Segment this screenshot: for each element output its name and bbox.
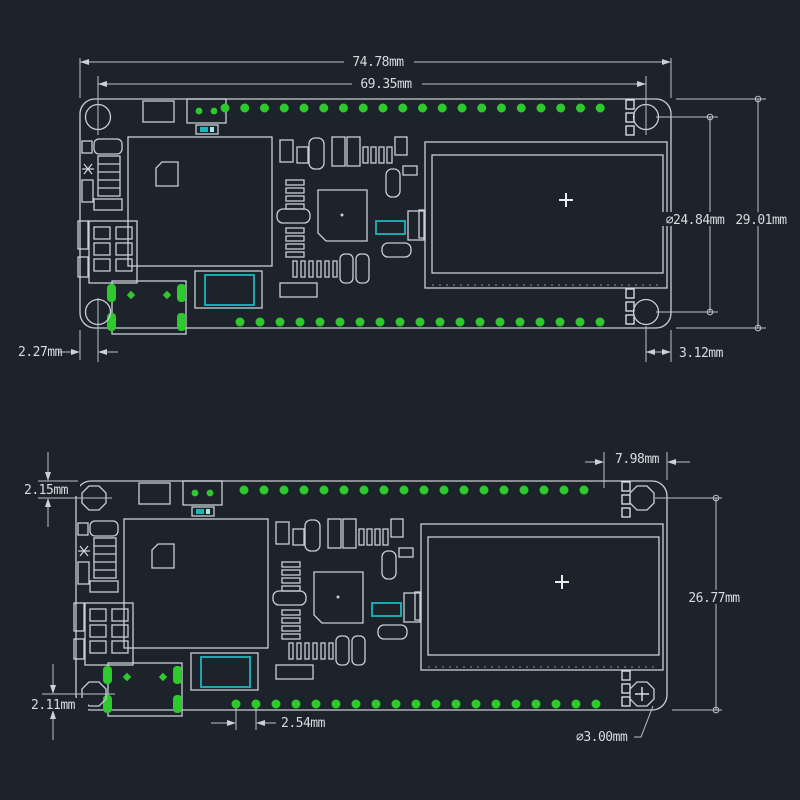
dim-right-hole-offset: 3.12mm	[646, 326, 724, 362]
dim-left-hole-offset-label: 2.27mm	[18, 345, 63, 360]
leader-line	[634, 706, 653, 737]
dim-hole-diameter-label: ⌀3.00mm	[576, 730, 628, 745]
dim-hole-diameter: ⌀3.00mm	[576, 706, 653, 745]
dim-hole-span-height-label: ⌀24.84mm	[666, 213, 725, 228]
top-view: 74.78mm 69.35mm ⌀24.84mm 29.01mm	[18, 55, 790, 362]
dim-right-hole-offset-label: 3.12mm	[679, 346, 724, 361]
dim-hole-span-width-label: 69.35mm	[360, 77, 412, 92]
dim-right-pin-offset: 7.98mm	[585, 452, 690, 488]
dim-overall-height-label: 29.01mm	[735, 213, 787, 228]
dim-pin-to-bottom-height: 26.77mm	[655, 495, 750, 713]
dim-pin-pitch-label: 2.54mm	[281, 716, 326, 731]
dim-top-pin-offset-label: 2.15mm	[24, 483, 69, 498]
pcb-dimension-drawing: 74.78mm 69.35mm ⌀24.84mm 29.01mm	[0, 0, 800, 800]
dim-bottom-pin-offset: 2.11mm	[18, 664, 115, 740]
dim-top-pin-offset: 2.15mm	[12, 452, 112, 527]
dim-pin-pitch: 2.54mm	[211, 708, 326, 731]
dim-bottom-pin-offset-label: 2.11mm	[31, 698, 76, 713]
dim-left-hole-offset: 2.27mm	[18, 298, 118, 362]
mounting-hole	[634, 300, 659, 325]
cad-canvas: 74.78mm 69.35mm ⌀24.84mm 29.01mm	[0, 0, 800, 800]
dim-pin-to-bottom-height-label: 26.77mm	[688, 591, 740, 606]
hole-center-mark-icon	[635, 687, 649, 701]
dim-right-pin-offset-label: 7.98mm	[615, 452, 660, 467]
mounting-hole	[630, 486, 654, 510]
dim-overall-width-label: 74.78mm	[352, 55, 404, 70]
bottom-view: 7.98mm 2.15mm 26.77mm 2.11mm	[12, 452, 750, 745]
